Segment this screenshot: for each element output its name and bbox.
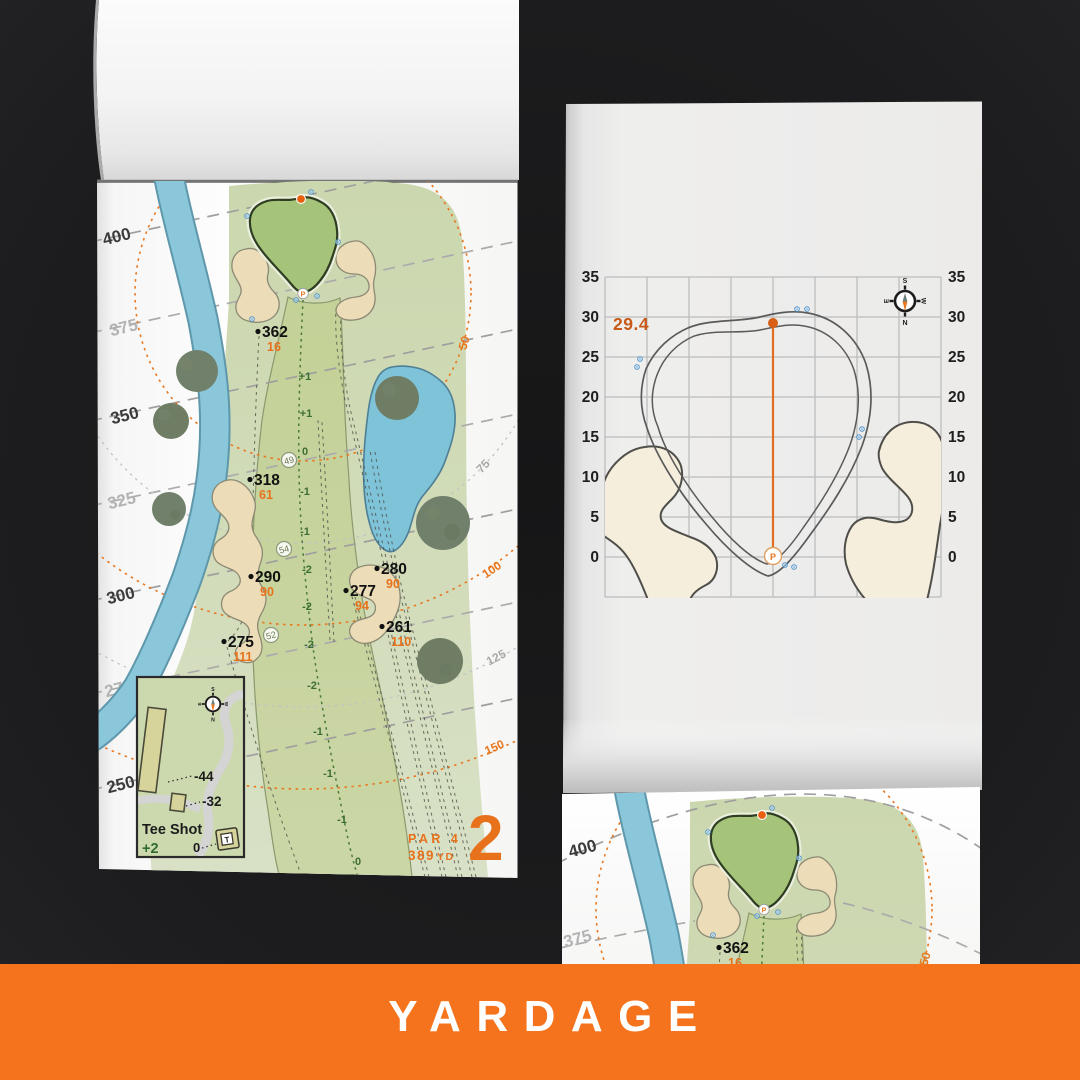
svg-text:-1: -1 [300,526,310,538]
svg-text:P: P [301,292,306,299]
svg-text:90: 90 [386,577,400,591]
svg-text:YARDAGE: YARDAGE [388,992,712,1041]
svg-text:111: 111 [233,650,253,664]
svg-text:30: 30 [948,309,965,326]
svg-text:35: 35 [582,269,600,286]
svg-text:25: 25 [948,349,966,366]
svg-text:20: 20 [582,389,599,406]
svg-text:-2: -2 [302,601,312,613]
svg-text:+2: +2 [142,841,159,857]
svg-text:275: 275 [228,634,254,651]
svg-text:-2: -2 [304,639,314,651]
svg-text:318: 318 [254,472,280,489]
svg-text:35: 35 [948,269,966,286]
svg-text:-1: -1 [300,486,310,498]
svg-text:10: 10 [948,469,965,486]
svg-text:10: 10 [582,469,599,486]
svg-text:20: 20 [948,389,965,406]
svg-text:261: 261 [386,619,412,636]
svg-text:389YD: 389YD [408,848,455,863]
svg-text:+1: +1 [300,408,313,420]
svg-text:-1: -1 [337,814,347,826]
svg-text:29.4: 29.4 [613,314,649,334]
svg-text:15: 15 [582,429,600,446]
svg-text:15: 15 [948,429,966,446]
svg-text:-44: -44 [194,769,214,784]
svg-text:-1: -1 [313,726,323,738]
svg-text:-32: -32 [202,794,222,809]
svg-text:90: 90 [260,585,274,599]
svg-text:+1: +1 [299,371,312,383]
svg-text:94: 94 [355,599,369,613]
svg-text:5: 5 [590,509,599,526]
svg-text:0: 0 [590,549,599,566]
svg-text:P: P [770,552,776,562]
svg-text:-1: -1 [323,768,333,780]
svg-text:-2: -2 [307,680,317,692]
svg-text:61: 61 [259,488,273,502]
svg-text:362: 362 [262,324,288,341]
svg-text:Tee Shot: Tee Shot [142,822,202,838]
svg-text:16: 16 [267,340,281,354]
svg-text:277: 277 [350,583,376,600]
svg-text:280: 280 [381,561,407,578]
svg-text:2: 2 [468,802,504,874]
svg-text:0: 0 [302,446,308,458]
svg-text:5: 5 [948,509,957,526]
svg-text:25: 25 [582,349,600,366]
svg-text:PAR 4: PAR 4 [408,832,461,846]
svg-text:30: 30 [582,309,599,326]
svg-text:290: 290 [255,569,281,586]
svg-text:0: 0 [948,549,957,566]
svg-text:110: 110 [391,635,411,649]
svg-text:0: 0 [193,840,200,855]
svg-text:0: 0 [355,856,361,868]
svg-text:-2: -2 [302,564,312,576]
